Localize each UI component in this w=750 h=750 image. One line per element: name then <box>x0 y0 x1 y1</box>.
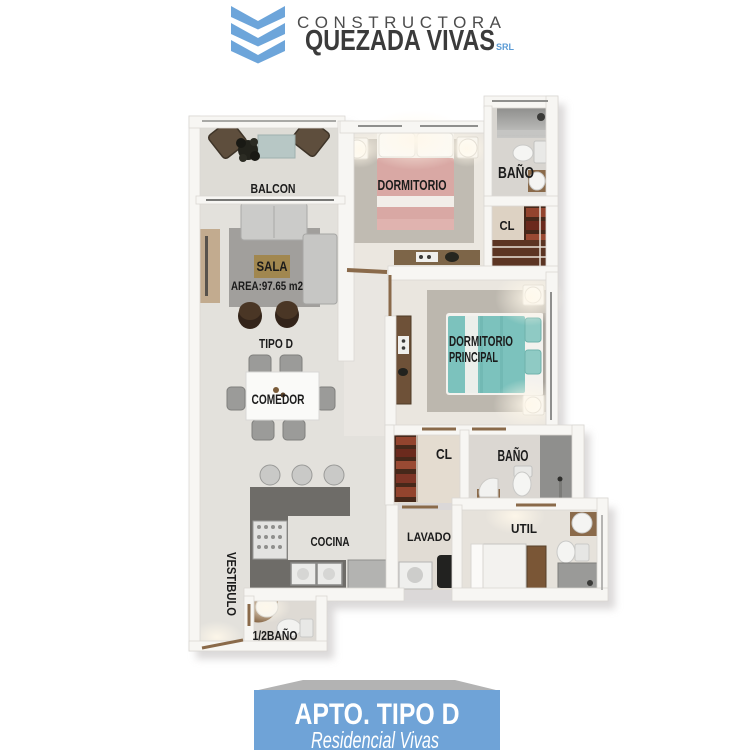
svg-text:BALCON: BALCON <box>251 181 296 196</box>
svg-text:TIPO D: TIPO D <box>259 336 293 351</box>
svg-text:UTIL: UTIL <box>511 521 537 536</box>
svg-text:PRINCIPAL: PRINCIPAL <box>449 349 498 366</box>
svg-text:VESTIBULO: VESTIBULO <box>224 552 238 616</box>
svg-text:QUEZADA VIVAS: QUEZADA VIVAS <box>305 25 495 57</box>
svg-text:AREA:97.65 m2: AREA:97.65 m2 <box>231 279 303 293</box>
svg-text:LAVADO: LAVADO <box>407 530 451 544</box>
svg-text:DORMITORIO: DORMITORIO <box>378 178 447 194</box>
svg-text:1/2BAÑO: 1/2BAÑO <box>253 628 298 643</box>
svg-text:CL: CL <box>436 446 452 463</box>
svg-text:DORMITORIO: DORMITORIO <box>449 333 513 350</box>
svg-text:COCINA: COCINA <box>311 535 350 549</box>
svg-text:COMEDOR: COMEDOR <box>252 391 305 407</box>
svg-text:SRL: SRL <box>496 42 515 52</box>
svg-text:BAÑO: BAÑO <box>498 162 534 182</box>
svg-text:CL: CL <box>500 218 515 233</box>
svg-text:SALA: SALA <box>257 259 288 274</box>
svg-text:Residencial Vivas: Residencial Vivas <box>311 727 439 750</box>
svg-text:BAÑO: BAÑO <box>498 445 529 465</box>
